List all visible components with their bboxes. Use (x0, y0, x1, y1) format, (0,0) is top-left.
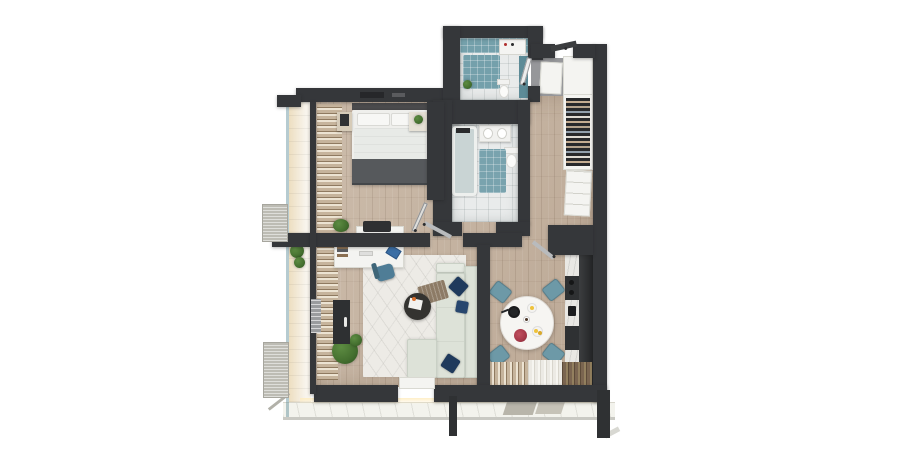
sofa-ottoman (407, 339, 437, 378)
floorplan-canvas (0, 0, 900, 450)
nightstand-plant (414, 115, 423, 124)
wall-bedroom-right (427, 102, 444, 200)
tv-cabinet (333, 300, 350, 344)
bed-duvet (354, 128, 426, 161)
balcony-privacy-screen (262, 204, 288, 242)
terrace-mat (503, 401, 538, 415)
tv-cabinet-handle (344, 317, 347, 327)
nightstand-picture-frame (340, 114, 349, 126)
radiator (311, 299, 321, 333)
wall-right (593, 44, 607, 402)
hall-drawer-unit (564, 169, 592, 216)
entry-closet (539, 61, 563, 94)
terrace-post (597, 390, 610, 438)
wall-corner-stub (277, 95, 301, 107)
bed-pillow (357, 113, 390, 126)
bath-mat (479, 149, 506, 193)
hall-wardrobe-clothes (566, 98, 590, 166)
wall-bath-right (518, 100, 530, 224)
wall-decor-item (360, 92, 384, 98)
washing-machine (499, 39, 526, 55)
wc-toilet-bowl (499, 85, 509, 98)
bathroom-toilet-bowl (506, 154, 517, 168)
corridor-plant (333, 219, 349, 232)
living-plant-small (350, 334, 362, 346)
terrace-mat (535, 402, 565, 414)
window-curtain-white (528, 360, 562, 386)
wall-wc-bath-band (443, 100, 530, 124)
balcony-privacy-screen (263, 342, 289, 398)
balcony-plant (294, 257, 305, 268)
bed-foot-blanket (352, 159, 428, 185)
vanity-sink (483, 128, 493, 139)
wc-plant (463, 80, 472, 89)
egg-yolk (530, 306, 534, 310)
cooktop-burner (569, 280, 574, 285)
washing-machine-dial (511, 43, 514, 46)
table-cup-coffee (525, 318, 528, 321)
kitchen-sink (568, 306, 576, 316)
sofa-armrest (436, 263, 465, 273)
desk-keyboard (359, 251, 373, 256)
cooktop-burner (569, 290, 574, 295)
vanity-sink (497, 128, 507, 139)
terrace-door-threshold (399, 377, 435, 389)
bathtub-faucet (456, 128, 470, 133)
window-curtain-brown (562, 362, 592, 386)
terrace-post (449, 396, 457, 436)
wall-decor-item (392, 93, 405, 97)
bathtub (452, 126, 477, 196)
table-pan (508, 306, 520, 318)
briefcase (363, 221, 391, 232)
entry-closet (563, 56, 593, 98)
bathroom-toilet-tank (504, 147, 519, 154)
wall-window-left (310, 102, 316, 394)
lemon (538, 331, 542, 335)
wall-living-dining-post (477, 245, 490, 387)
wall-bottom-left (314, 385, 398, 402)
washing-machine-dial (504, 43, 507, 46)
wall-bottom-right (434, 385, 607, 402)
wall-corridor-west (272, 233, 430, 247)
wall-utility-shaft (548, 225, 593, 255)
wall-corridor-lintel (463, 233, 522, 247)
kitchen-appliance (565, 326, 579, 350)
bed-headboard (352, 103, 428, 110)
sofa-cushion (455, 300, 469, 314)
coffee-table-bowl (412, 297, 416, 301)
table-flowers (514, 329, 527, 342)
